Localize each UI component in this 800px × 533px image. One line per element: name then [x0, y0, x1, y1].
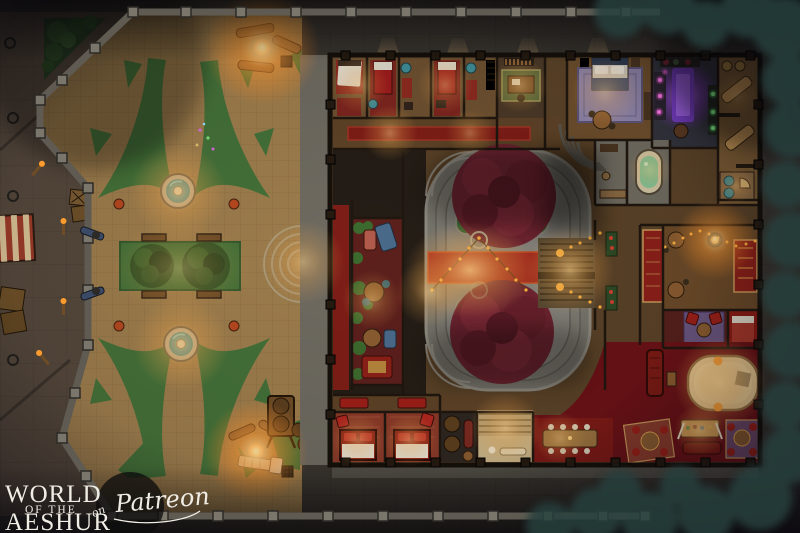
- map-canvas: WORLD OF THE AESHUR on Patreon: [0, 0, 800, 533]
- night-shading: [0, 0, 800, 533]
- battle-map: WORLD OF THE AESHUR on Patreon: [0, 0, 800, 533]
